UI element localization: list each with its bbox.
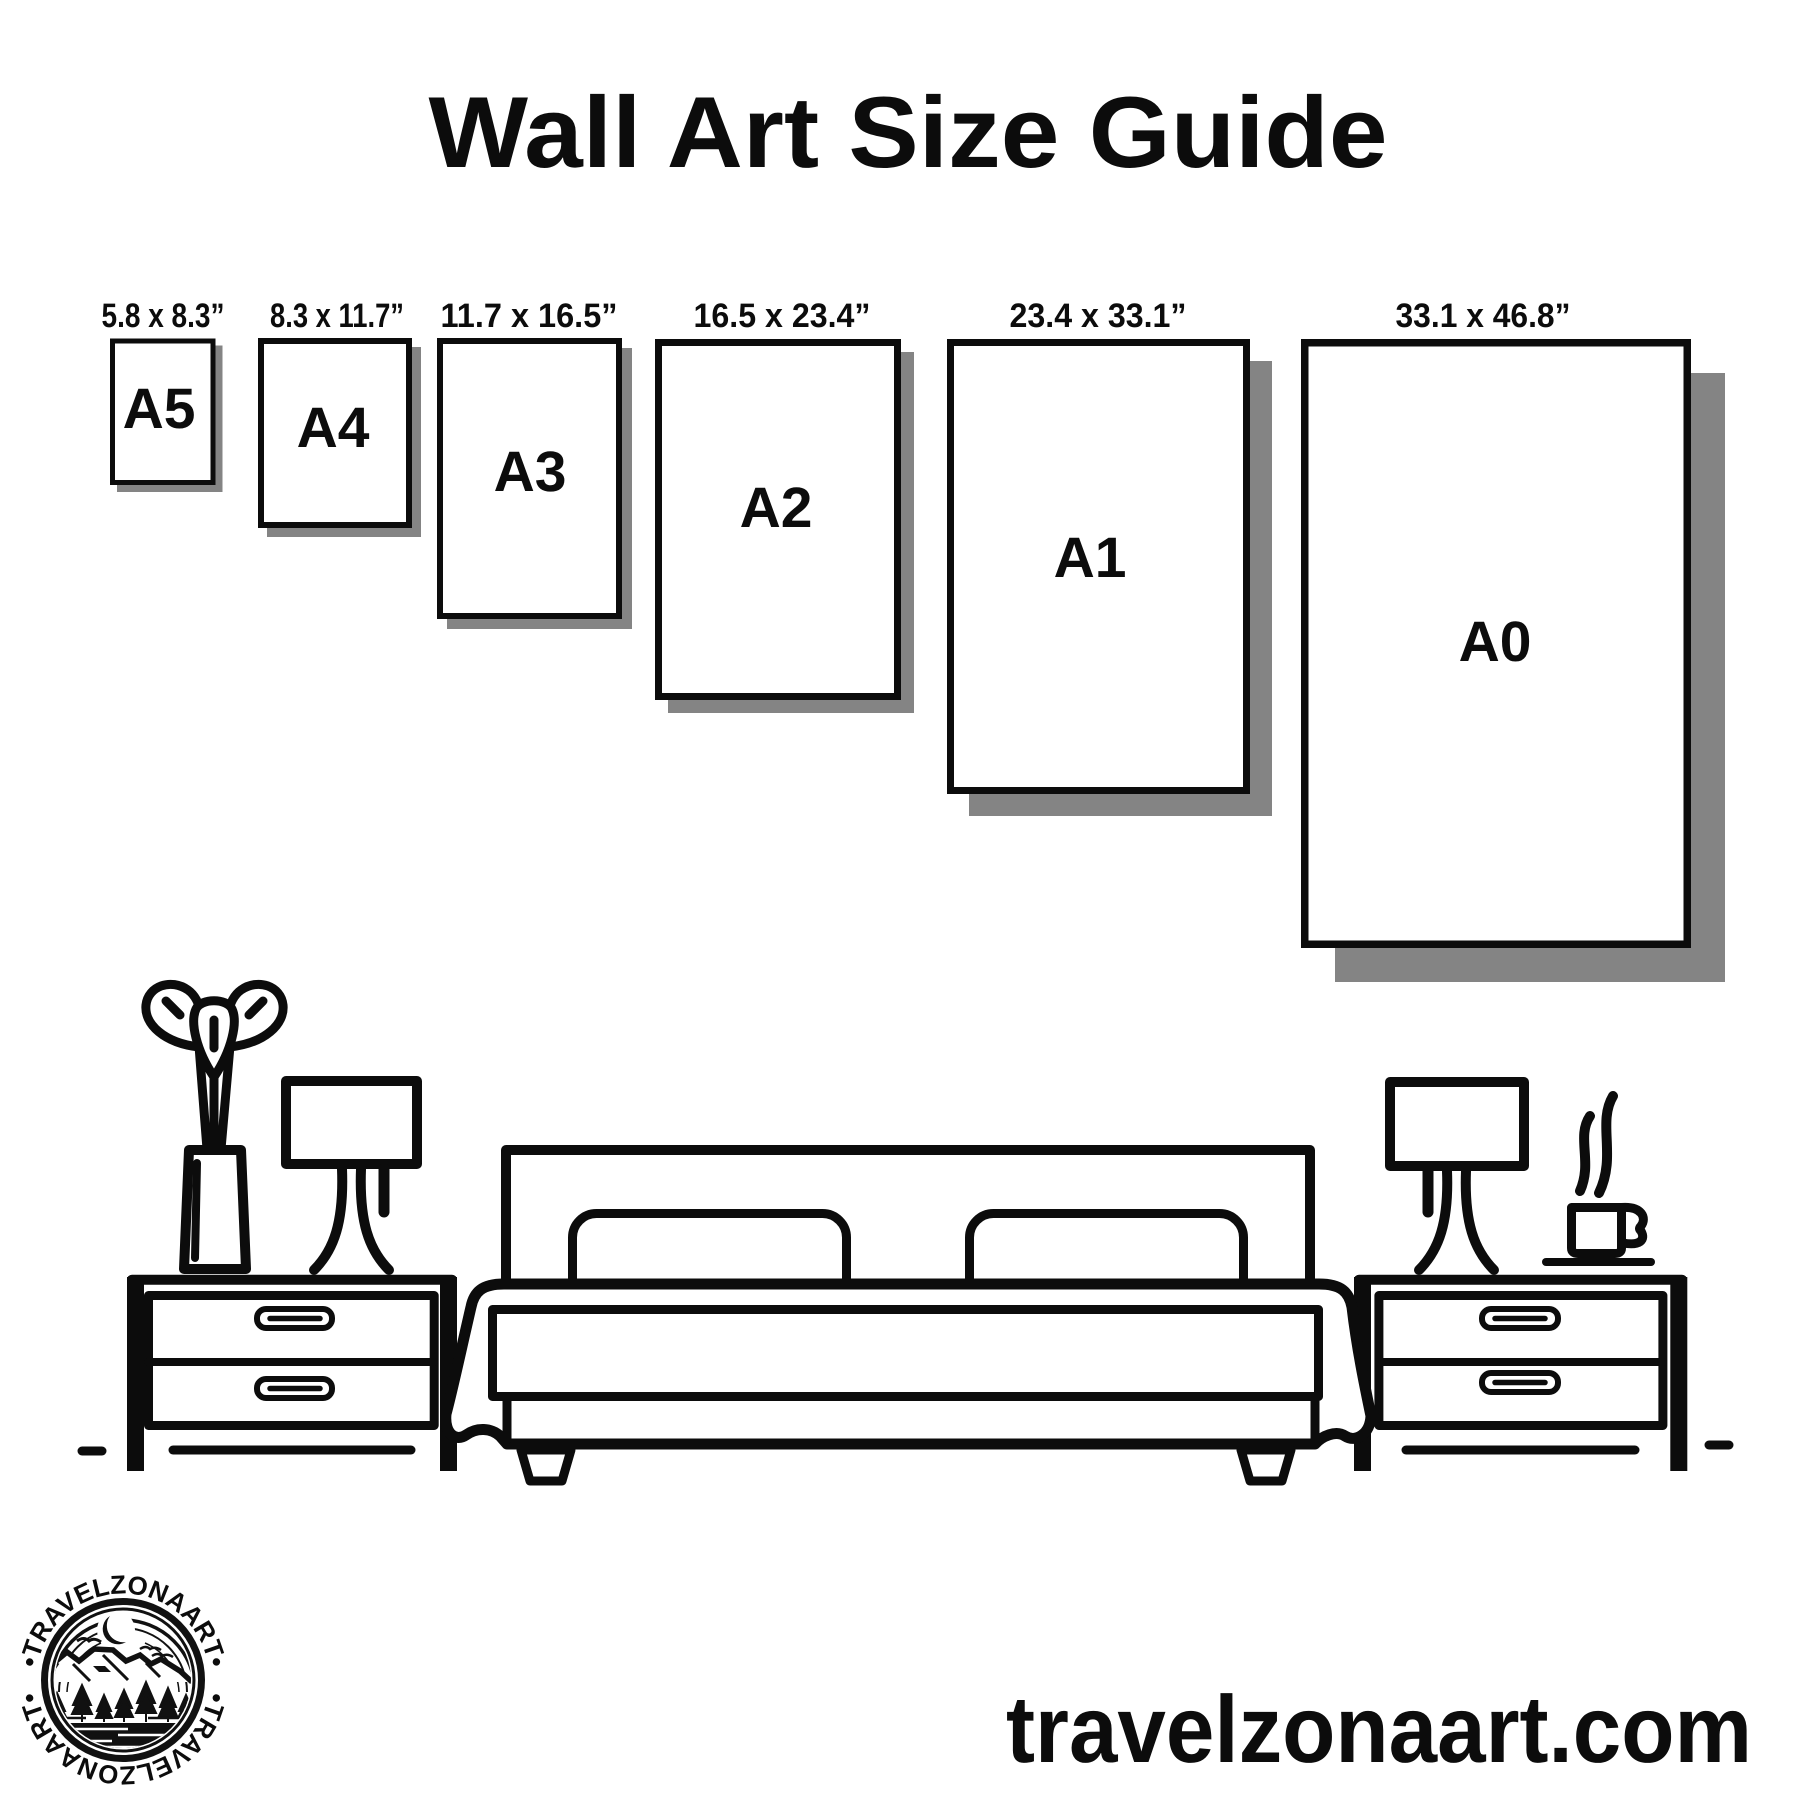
svg-text:A5: A5: [123, 377, 196, 441]
svg-text:8.3 x 11.7”: 8.3 x 11.7”: [270, 297, 404, 335]
svg-text:travelzonaart.com: travelzonaart.com: [1006, 1677, 1752, 1783]
svg-text:23.4 x 33.1”: 23.4 x 33.1”: [1010, 297, 1187, 335]
svg-text:A2: A2: [740, 476, 813, 540]
svg-text:A0: A0: [1459, 610, 1532, 674]
svg-text:A3: A3: [494, 440, 567, 504]
svg-text:5.8 x 8.3”: 5.8 x 8.3”: [102, 297, 225, 335]
svg-text:A1: A1: [1054, 526, 1127, 590]
svg-text:11.7 x 16.5”: 11.7 x 16.5”: [441, 297, 618, 335]
svg-text:16.5 x 23.4”: 16.5 x 23.4”: [694, 297, 871, 335]
svg-text:A4: A4: [297, 396, 370, 460]
svg-text:33.1 x 46.8”: 33.1 x 46.8”: [1396, 297, 1571, 335]
svg-text:Wall Art Size Guide: Wall Art Size Guide: [429, 77, 1388, 189]
